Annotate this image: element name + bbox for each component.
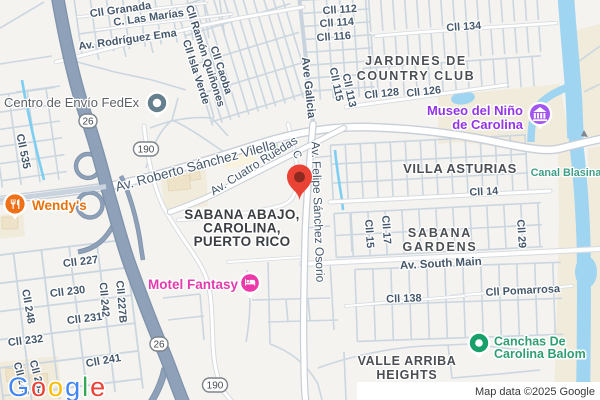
svg-text:Motel Fantasy: Motel Fantasy [148,277,239,292]
svg-text:Google: Google [8,372,107,400]
svg-text:Cll 14: Cll 14 [469,185,498,198]
svg-text:Wendy's: Wendy's [32,198,87,213]
svg-text:Cll 29: Cll 29 [514,219,528,249]
svg-text:Cll 17: Cll 17 [379,215,393,245]
svg-text:Cll 138: Cll 138 [386,292,422,305]
svg-text:26: 26 [82,117,94,128]
svg-text:PUERTO RICO: PUERTO RICO [194,234,291,249]
svg-text:de Carolina: de Carolina [452,117,524,132]
svg-text:190: 190 [207,381,224,392]
svg-text:COUNTRY CLUB: COUNTRY CLUB [357,69,476,83]
svg-text:Map data ©2025 Google: Map data ©2025 Google [475,386,595,398]
svg-text:Museo del Niño: Museo del Niño [427,103,523,118]
svg-text:190: 190 [138,145,155,156]
svg-text:Cll 134: Cll 134 [446,20,482,34]
svg-text:GARDENS: GARDENS [402,240,477,254]
svg-text:JARDINES DE: JARDINES DE [365,54,467,68]
svg-text:Cll 15: Cll 15 [362,219,376,249]
svg-text:SABANA: SABANA [408,226,472,240]
svg-text:Centro de Envío FedEx: Centro de Envío FedEx [4,95,140,110]
svg-text:Cll 116: Cll 116 [316,30,351,44]
svg-text:Carolina Balom: Carolina Balom [494,347,586,361]
svg-text:VILLA ASTURIAS: VILLA ASTURIAS [403,161,517,176]
svg-text:26: 26 [153,340,165,351]
svg-text:Canal Blasina: Canal Blasina [531,167,600,179]
svg-text:VALLE ARRIBA: VALLE ARRIBA [358,354,457,368]
svg-text:Cll 114: Cll 114 [319,16,354,30]
svg-text:HEIGHTS: HEIGHTS [376,368,437,382]
